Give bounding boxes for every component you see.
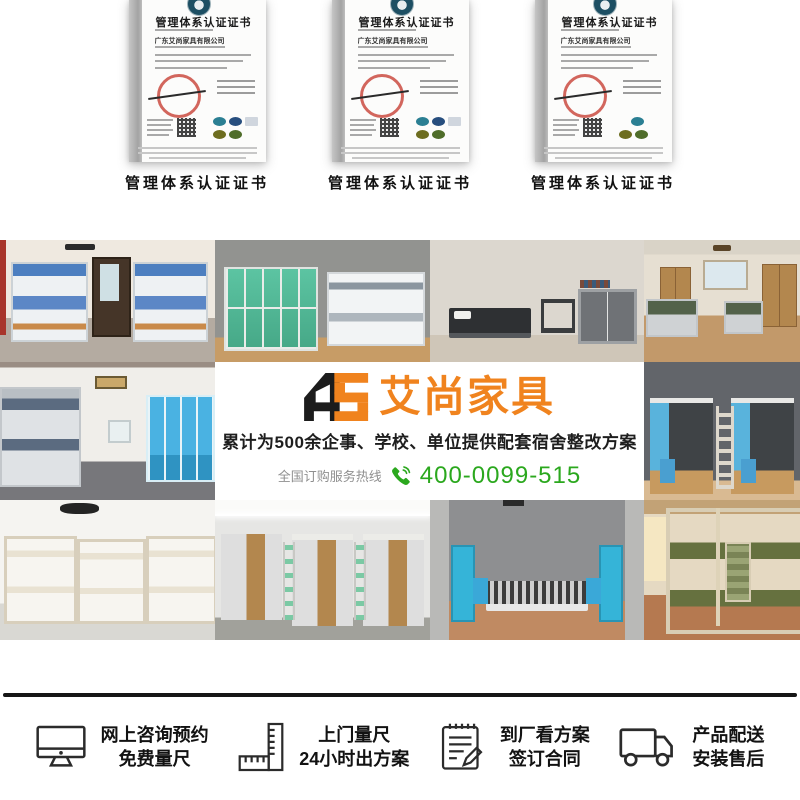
service-sign-contract: 到厂看方案 签订合同 — [439, 722, 590, 772]
cert-text-line — [561, 46, 631, 48]
cert-fineprint-line — [341, 147, 460, 149]
cert-fineprint-line — [341, 152, 460, 154]
cert-text-line — [553, 119, 579, 121]
certificate-caption: 管理体系认证证书 — [125, 172, 269, 193]
services-bar: 网上咨询预约 免费量尺 — [0, 697, 800, 797]
storage-cabinet — [578, 289, 638, 344]
cert-text-line — [553, 129, 579, 131]
cert-text-line — [350, 124, 374, 126]
bed-post — [716, 508, 720, 626]
cert-text-line — [350, 134, 372, 136]
accreditation-badge-icon — [245, 117, 258, 126]
certificate-title: 管理体系认证证书 — [548, 14, 672, 30]
accreditation-badge-icon — [416, 117, 429, 126]
cert-text-line — [561, 67, 633, 69]
ruler-icon — [238, 722, 284, 772]
cert-text-line — [350, 129, 376, 131]
cert-date-line — [420, 86, 458, 88]
cert-text-line — [147, 129, 173, 131]
bunk-bed — [133, 262, 208, 342]
banner-tagline: 累计为500余企事、学校、单位提供配套宿舍整改方案 — [222, 428, 637, 453]
page: 管理体系认证证书 广东艾尚家具有限公司 — [0, 0, 800, 800]
bunk-bed — [11, 262, 88, 342]
cert-fineprint-line — [138, 152, 257, 154]
platform-beds — [486, 581, 589, 610]
bunk-bed — [4, 536, 77, 623]
accreditation-badge-icon — [635, 130, 648, 139]
ceiling-light — [65, 244, 95, 250]
cert-text-line — [358, 29, 416, 31]
door-window — [100, 264, 119, 301]
service-line2: 安装售后 — [692, 747, 764, 771]
certificate-company: 广东艾尚家具有限公司 — [155, 36, 260, 46]
accreditation-badge-icon — [631, 117, 644, 126]
spacer — [0, 640, 800, 693]
cert-date-line — [420, 92, 458, 94]
teal-cabinet — [451, 545, 474, 622]
cert-date-line — [420, 80, 458, 82]
accreditation-badge-icon — [448, 117, 461, 126]
gallery-photo-green-metal-bunks — [644, 500, 800, 640]
locker-cabinet — [224, 267, 318, 352]
cert-date-line — [217, 86, 255, 88]
gallery-photo-dorm-blue-bunk-beds — [0, 240, 215, 362]
cert-text-line — [358, 46, 428, 48]
cert-text-line — [561, 60, 649, 62]
bunk-bed — [0, 387, 81, 488]
cert-fineprint-line — [138, 147, 257, 149]
hotline-phone-number[interactable]: 400-0099-515 — [420, 462, 581, 490]
contract-pen-icon — [439, 722, 485, 772]
side-wall — [430, 500, 449, 640]
certificates-section: 管理体系认证证书 广东艾尚家具有限公司 — [0, 0, 800, 240]
hotline-label: 全国订购服务热线 — [278, 466, 382, 485]
blue-cabinet-desk-unit — [146, 395, 215, 482]
as-logo-mark-icon — [304, 373, 370, 421]
service-text: 网上咨询预约 免费量尺 — [101, 723, 209, 772]
certificate-company: 广东艾尚家具有限公司 — [561, 36, 666, 46]
metal-bed-green-bedding — [724, 301, 762, 334]
bunk-bed — [327, 272, 426, 347]
accreditation-badge-icon — [619, 130, 632, 139]
brand-banner: 艾尚家具 累计为500余企事、学校、单位提供配套宿舍整改方案 全国订购服务热线 … — [215, 362, 644, 500]
service-line2: 24小时出方案 — [299, 747, 409, 771]
qr-code-icon — [583, 118, 602, 137]
ceiling-light — [503, 500, 524, 506]
desk-chair — [473, 578, 488, 603]
gallery-photo-loft-wooden-doors — [215, 500, 430, 640]
cert-text-line — [155, 60, 243, 62]
hotline: 全国订购服务热线 400-0099-515 — [278, 462, 581, 490]
bunk-bed — [146, 536, 215, 623]
phone-icon — [390, 465, 412, 487]
accreditation-badge-icon — [229, 130, 242, 139]
cert-text-line — [553, 134, 575, 136]
cert-date-line — [623, 92, 661, 94]
accreditation-badge-icon — [213, 117, 226, 126]
accreditation-badge-icon — [432, 117, 445, 126]
pillow — [454, 311, 471, 320]
metal-bed-green-bedding — [646, 299, 698, 337]
cert-fineprint-line — [544, 152, 663, 154]
cert-text-line — [553, 124, 577, 126]
cert-text-line — [155, 29, 213, 31]
bunk-bed — [77, 539, 145, 623]
cert-date-line — [217, 92, 255, 94]
accreditation-badge-icon — [416, 130, 429, 139]
gallery-photo-single-bed-room — [430, 240, 644, 362]
ceiling-light — [95, 376, 127, 390]
service-online-consult: 网上咨询预约 免费量尺 — [36, 723, 209, 772]
cert-fineprint-line — [555, 157, 652, 159]
cert-text-line — [561, 29, 619, 31]
cert-text-line — [155, 46, 225, 48]
cert-date-line — [623, 80, 661, 82]
loft-bed-wardrobe-unit — [292, 534, 352, 627]
service-line1: 产品配送 — [692, 723, 764, 747]
service-text: 产品配送 安装售后 — [692, 723, 764, 772]
cert-text-line — [350, 119, 376, 121]
cert-text-line — [358, 67, 430, 69]
books-on-cabinet — [580, 280, 610, 287]
cove-light — [215, 514, 430, 516]
certificate-side-band — [129, 0, 142, 162]
certificate-side-band — [535, 0, 548, 162]
certificate-side-band — [332, 0, 345, 162]
desk-and-chair — [541, 299, 575, 333]
ceiling-light — [713, 245, 732, 251]
green-ladder — [283, 542, 296, 620]
gallery-photo-teal-lockers — [215, 240, 430, 362]
accreditation-badge-icon — [229, 117, 242, 126]
gallery-photo-gray-bunks-blue-cabinets — [0, 362, 215, 500]
cert-text-line — [147, 134, 169, 136]
loft-bed-wardrobe-unit — [221, 534, 281, 621]
qr-code-icon — [177, 118, 196, 137]
certificate-title: 管理体系认证证书 — [345, 14, 469, 30]
wooden-wardrobe — [762, 264, 797, 327]
cert-fineprint-line — [352, 157, 449, 159]
certificate-3: 管理体系认证证书 广东艾尚家具有限公司 — [535, 0, 672, 240]
monitor-icon — [36, 725, 86, 769]
qr-code-icon — [380, 118, 399, 137]
ladder — [716, 406, 734, 489]
certificate-2: 管理体系认证证书 广东艾尚家具有限公司 — [332, 0, 469, 240]
service-line1: 网上咨询预约 — [101, 723, 209, 747]
cert-fineprint-line — [544, 147, 663, 149]
service-text: 上门量尺 24小时出方案 — [299, 723, 409, 772]
side-wall — [625, 500, 644, 640]
red-seal-icon — [563, 74, 607, 118]
wall-picture — [108, 420, 131, 443]
gallery-photo-dark-loft-units — [644, 362, 800, 500]
gallery-photo-wooden-wardrobe-dorm — [644, 240, 800, 362]
red-seal-icon — [360, 74, 404, 118]
accreditation-badge-icon — [213, 130, 226, 139]
cert-text-line — [358, 60, 446, 62]
service-line1: 到厂看方案 — [500, 723, 590, 747]
chair — [660, 459, 676, 484]
cert-text-line — [155, 54, 251, 56]
brand-name: 艾尚家具 — [379, 376, 555, 418]
service-line1: 上门量尺 — [299, 723, 409, 747]
certificate-caption: 管理体系认证证书 — [328, 172, 472, 193]
accreditation-badge-icon — [432, 130, 445, 139]
certificate-paper: 管理体系认证证书 广东艾尚家具有限公司 — [129, 0, 266, 162]
bunk-ladder-steps — [725, 542, 751, 602]
gallery-grid: 艾尚家具 累计为500余企事、学校、单位提供配套宿舍整改方案 全国订购服务热线 … — [0, 240, 800, 640]
chair — [741, 459, 757, 484]
cert-text-line — [155, 67, 227, 69]
service-delivery-install: 产品配送 安装售后 — [619, 723, 764, 772]
service-line2: 签订合同 — [500, 747, 590, 771]
cert-text-line — [561, 54, 657, 56]
cert-text-line — [358, 54, 454, 56]
logo: 艾尚家具 — [304, 373, 555, 421]
certificate-title: 管理体系认证证书 — [142, 14, 266, 30]
green-ladder — [354, 542, 367, 620]
loft-bed-wardrobe-unit — [363, 534, 423, 627]
certificate-paper: 管理体系认证证书 广东艾尚家具有限公司 — [535, 0, 672, 162]
red-seal-icon — [157, 74, 201, 118]
red-wall-strip — [0, 240, 6, 335]
cert-text-line — [147, 119, 173, 121]
service-text: 到厂看方案 签订合同 — [500, 723, 590, 772]
cert-date-line — [217, 80, 255, 82]
service-onsite-measure: 上门量尺 24小时出方案 — [238, 722, 409, 772]
delivery-truck-icon — [619, 726, 677, 768]
desk-chair — [586, 578, 601, 603]
cert-text-line — [147, 124, 171, 126]
teal-cabinet — [599, 545, 622, 622]
service-line2: 免费量尺 — [101, 747, 209, 771]
window — [703, 260, 748, 291]
cert-date-line — [623, 86, 661, 88]
certificate-caption: 管理体系认证证书 — [531, 172, 675, 193]
gallery-photo-cream-bunks — [0, 500, 215, 640]
certificate-company: 广东艾尚家具有限公司 — [358, 36, 463, 46]
certificate-1: 管理体系认证证书 广东艾尚家具有限公司 — [129, 0, 266, 240]
cert-fineprint-line — [149, 157, 246, 159]
gallery-photo-platform-beds-teal-cabinets — [430, 500, 644, 640]
ceiling-light — [60, 503, 99, 514]
certificate-paper: 管理体系认证证书 广东艾尚家具有限公司 — [332, 0, 469, 162]
